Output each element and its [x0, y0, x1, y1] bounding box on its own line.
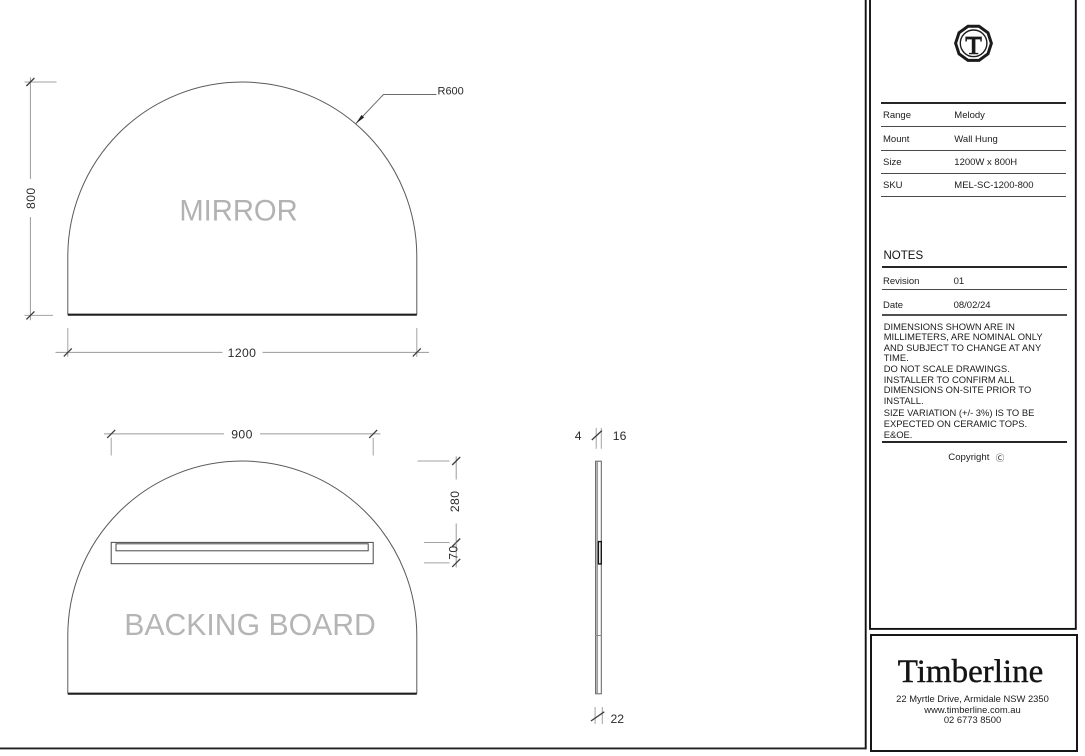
svg-text:22: 22	[611, 712, 625, 726]
svg-text:800: 800	[24, 187, 38, 209]
svg-text:70: 70	[446, 545, 460, 559]
svg-text:900: 900	[231, 427, 253, 441]
svg-text:280: 280	[448, 491, 462, 513]
svg-text:BACKING BOARD: BACKING BOARD	[124, 609, 376, 642]
svg-text:MIRROR: MIRROR	[179, 196, 297, 228]
svg-text:R600: R600	[438, 85, 464, 97]
svg-text:4: 4	[575, 429, 582, 443]
svg-text:16: 16	[613, 429, 627, 443]
svg-text:1200: 1200	[228, 346, 257, 360]
